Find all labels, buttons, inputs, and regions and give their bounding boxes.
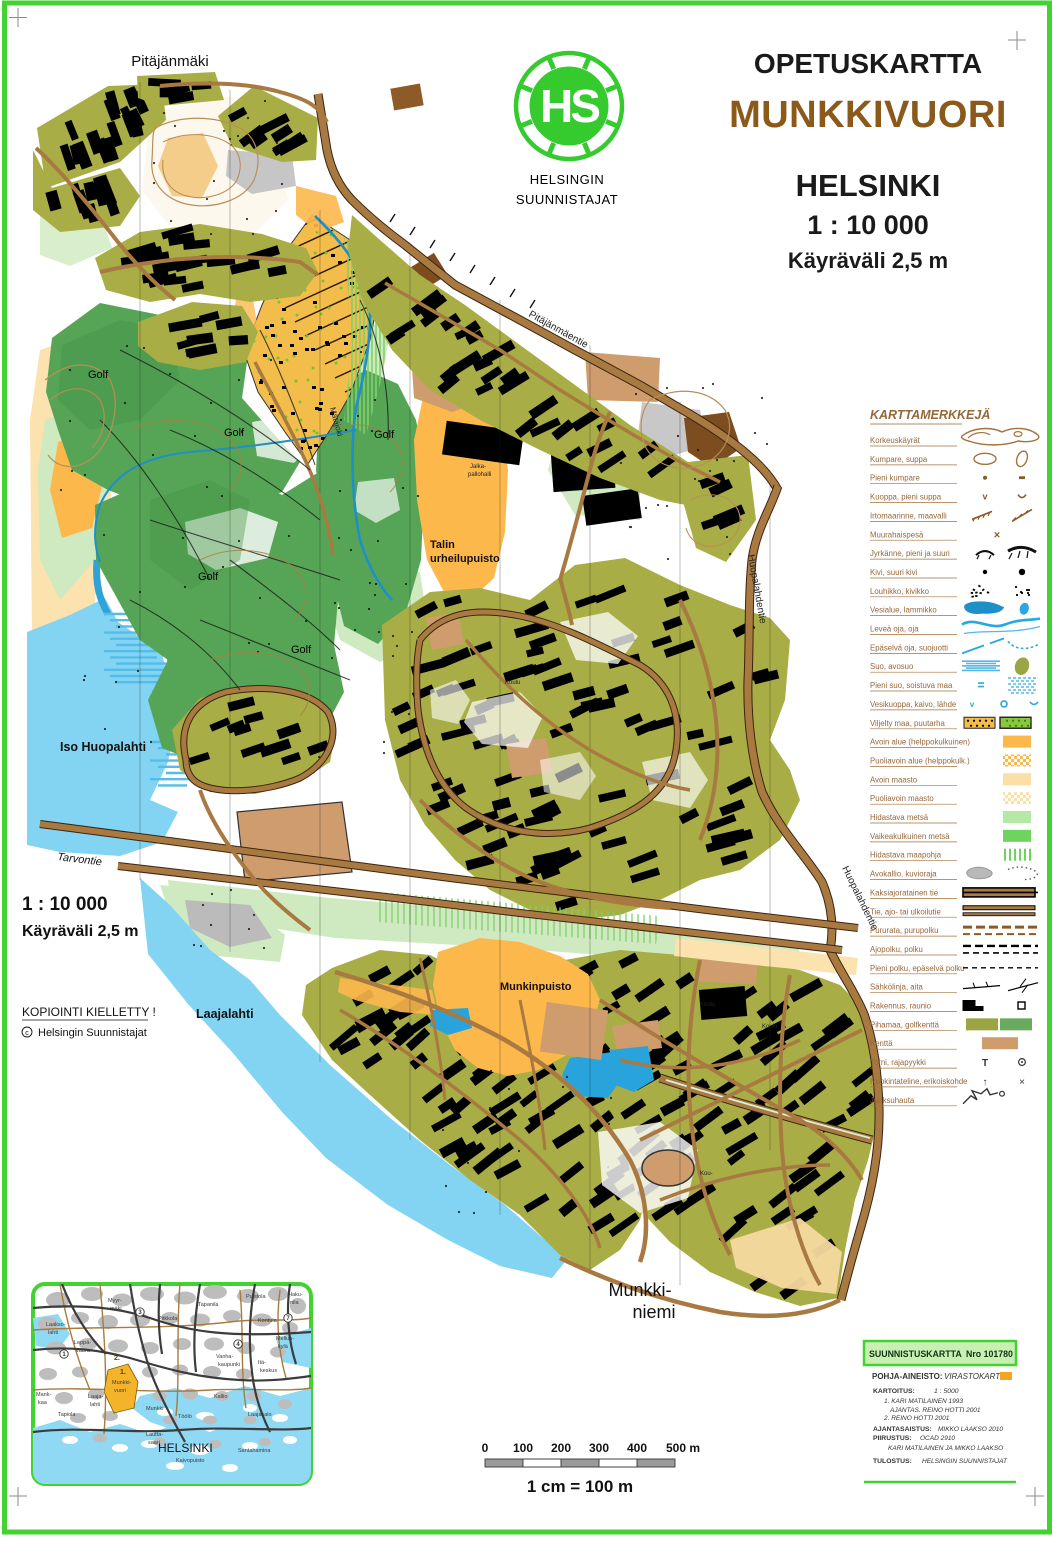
svg-text:1. KARI MATILAINEN 1993: 1. KARI MATILAINEN 1993 — [884, 1398, 963, 1405]
svg-text:Kou-: Kou- — [700, 1171, 713, 1177]
svg-text:keskus: keskus — [260, 1368, 277, 1374]
svg-text:Irtomaarinne, maavalli: Irtomaarinne, maavalli — [870, 511, 947, 520]
svg-text:SUUNNISTAJAT: SUUNNISTAJAT — [516, 192, 618, 207]
svg-text:Laajalahti: Laajalahti — [196, 1007, 254, 1021]
svg-text:HELSINKI: HELSINKI — [158, 1441, 213, 1455]
svg-text:Golf: Golf — [198, 571, 219, 583]
svg-text:Lautta-: Lautta- — [146, 1432, 163, 1438]
svg-text:Golf: Golf — [88, 369, 109, 381]
svg-text:Vesikuoppa, kaivo, lähde: Vesikuoppa, kaivo, lähde — [870, 700, 956, 709]
svg-text:Avoin maasto: Avoin maasto — [870, 775, 918, 784]
svg-text:HELSINGIN SUUNNISTAJAT: HELSINGIN SUUNNISTAJAT — [922, 1458, 1008, 1465]
svg-text:Kallio: Kallio — [214, 1394, 227, 1400]
svg-text:Laaja-: Laaja- — [88, 1394, 103, 1400]
svg-text:v: v — [982, 492, 987, 502]
svg-text:Jalka-: Jalka- — [470, 464, 486, 470]
svg-text:Epäselvä oja, suojuotti: Epäselvä oja, suojuotti — [870, 643, 948, 652]
svg-text:Pihamaa, golfkenttä: Pihamaa, golfkenttä — [870, 1020, 940, 1029]
svg-text:1.: 1. — [120, 1369, 126, 1376]
svg-text:Juoksuhauta: Juoksuhauta — [870, 1096, 915, 1105]
svg-text:Golf: Golf — [291, 644, 312, 656]
svg-text:Käyräväli 2,5 m: Käyräväli 2,5 m — [788, 248, 948, 273]
svg-text:Iso Huopalahti: Iso Huopalahti — [60, 740, 146, 754]
svg-text:×: × — [994, 529, 1000, 541]
svg-text:v: v — [970, 700, 975, 709]
svg-text:Kumpare, suppa: Kumpare, suppa — [870, 455, 928, 464]
svg-text:vaara: vaara — [76, 1348, 91, 1354]
svg-text:300: 300 — [589, 1441, 609, 1455]
svg-text:HELSINKI: HELSINKI — [796, 168, 941, 203]
svg-text:KARI MATILAINEN JA MIKKO LAAK: KARI MATILAINEN JA MIKKO LAAKSO — [888, 1445, 1003, 1452]
svg-text:Golf: Golf — [224, 427, 245, 439]
svg-text:PIIRUSTUS:: PIIRUSTUS: — [873, 1435, 912, 1442]
svg-text:Kaksiajoratainen tie: Kaksiajoratainen tie — [870, 888, 938, 897]
svg-text:nila: nila — [290, 1300, 300, 1306]
svg-text:Ruokintateline, erikoiskohde: Ruokintateline, erikoiskohde — [870, 1077, 968, 1086]
svg-text:Munkki-: Munkki- — [608, 1280, 671, 1300]
svg-text:POHJA-AINEISTO:: POHJA-AINEISTO: — [872, 1372, 943, 1381]
svg-text:Pieni polku, epäselvä polku: Pieni polku, epäselvä polku — [870, 964, 965, 973]
svg-text:Torni, rajapyykki: Torni, rajapyykki — [870, 1058, 926, 1067]
svg-text:lahti: lahti — [90, 1402, 100, 1408]
svg-text:Leppä-: Leppä- — [74, 1340, 91, 1346]
svg-text:Tie, ajo- tai ulkoilutie: Tie, ajo- tai ulkoilutie — [870, 907, 941, 916]
svg-text:Tapiola: Tapiola — [58, 1412, 76, 1418]
svg-text:Puoliavoin maasto: Puoliavoin maasto — [870, 794, 934, 803]
svg-text:Kaivopuisto: Kaivopuisto — [176, 1458, 204, 1464]
svg-text:Käyräväli 2,5 m: Käyräväli 2,5 m — [22, 923, 139, 940]
svg-text:kylä: kylä — [278, 1344, 289, 1350]
svg-text:Korkeuskäyrät: Korkeuskäyrät — [870, 436, 921, 445]
svg-text:Leveä oja, oja: Leveä oja, oja — [870, 625, 919, 634]
svg-text:Koulu: Koulu — [762, 1024, 777, 1030]
svg-text:500 m: 500 m — [666, 1441, 700, 1455]
svg-text:1 : 10 000: 1 : 10 000 — [22, 894, 108, 915]
svg-text:↑: ↑ — [983, 1077, 988, 1088]
svg-text:T: T — [982, 1058, 988, 1069]
svg-text:Viljelty maa, puutarha: Viljelty maa, puutarha — [870, 719, 945, 728]
svg-text:MUNKKIVUORI: MUNKKIVUORI — [729, 94, 1007, 136]
svg-text:Pitkkola: Pitkkola — [158, 1316, 178, 1322]
svg-text:Puoliavoin alue (helppokulk.): Puoliavoin alue (helppokulk.) — [870, 756, 970, 765]
svg-text:AJANTASAISTUS:: AJANTASAISTUS: — [873, 1426, 932, 1433]
svg-text:Hidastava metsä: Hidastava metsä — [870, 813, 929, 822]
svg-text:urheilupuisto: urheilupuisto — [430, 553, 500, 565]
svg-text:×: × — [1019, 1077, 1025, 1088]
svg-text:Munkinpuisto: Munkinpuisto — [500, 981, 572, 993]
svg-text:OPETUSKARTTA: OPETUSKARTTA — [754, 48, 982, 79]
svg-text:400: 400 — [627, 1441, 647, 1455]
svg-text:0: 0 — [482, 1441, 489, 1455]
svg-text:Mellun-: Mellun- — [276, 1336, 294, 1342]
svg-text:Santahamina: Santahamina — [238, 1448, 271, 1454]
svg-text:Itä-: Itä- — [258, 1360, 266, 1366]
svg-text:niemi: niemi — [632, 1302, 675, 1322]
svg-text:Muurahaispesä: Muurahaispesä — [870, 530, 924, 539]
svg-text:lahti: lahti — [48, 1330, 58, 1336]
svg-text:c: c — [25, 1030, 29, 1037]
svg-text:Vanha-: Vanha- — [216, 1354, 233, 1360]
svg-text:SUUNNISTUSKARTTA: SUUNNISTUSKARTTA — [869, 1349, 962, 1359]
svg-text:Munkki: Munkki — [146, 1406, 163, 1412]
svg-text:Kenttä: Kenttä — [870, 1039, 893, 1048]
svg-text:Kivi, suuri kivi: Kivi, suuri kivi — [870, 568, 917, 577]
svg-text:pallohalli: pallohalli — [468, 472, 491, 478]
svg-text:Pururata, purupolku: Pururata, purupolku — [870, 926, 938, 935]
svg-text:Koulu: Koulu — [700, 1002, 715, 1008]
svg-text:1 cm = 100 m: 1 cm = 100 m — [527, 1477, 633, 1496]
svg-text:MIKKO LAAKSO 2010: MIKKO LAAKSO 2010 — [938, 1426, 1003, 1433]
svg-text:AJANTAS. REINO HOTTI 2001: AJANTAS. REINO HOTTI 2001 — [889, 1407, 981, 1414]
svg-text:Vaikeakulkuinen metsä: Vaikeakulkuinen metsä — [870, 832, 950, 841]
svg-text:Rakennus, raunio: Rakennus, raunio — [870, 1002, 932, 1011]
svg-text:HELSINGIN: HELSINGIN — [530, 172, 605, 187]
svg-text:HS: HS — [540, 80, 599, 132]
svg-text:Jyrkänne, pieni ja suuri: Jyrkänne, pieni ja suuri — [870, 549, 950, 558]
svg-text:TULOSTUS:: TULOSTUS: — [873, 1458, 912, 1465]
svg-text:Avoin alue (helppokulkuinen): Avoin alue (helppokulkuinen) — [870, 738, 970, 747]
svg-text:Golf: Golf — [374, 429, 395, 441]
svg-text:200: 200 — [551, 1441, 571, 1455]
svg-text:Talin: Talin — [430, 539, 455, 551]
svg-text:Mank-: Mank- — [36, 1392, 51, 1398]
svg-text:Kontula: Kontula — [258, 1318, 278, 1324]
svg-text:Kuoppa, pieni suppa: Kuoppa, pieni suppa — [870, 493, 942, 502]
svg-text:Helsingin Suunnistajat: Helsingin Suunnistajat — [38, 1027, 147, 1039]
svg-text:Sähkölinja, aita: Sähkölinja, aita — [870, 983, 924, 992]
svg-text:vuori: vuori — [114, 1388, 126, 1394]
svg-text:KARTOITUS:: KARTOITUS: — [873, 1388, 915, 1395]
svg-text:1 : 10 000: 1 : 10 000 — [807, 210, 929, 240]
svg-text:VIRASTOKARTTA: VIRASTOKARTTA — [944, 1372, 1010, 1381]
svg-text:100: 100 — [513, 1441, 533, 1455]
svg-text:Ajopolku, polku: Ajopolku, polku — [870, 945, 923, 954]
svg-text:KARTTAMERKKEJÄ: KARTTAMERKKEJÄ — [870, 407, 990, 422]
svg-text:Avokallio, kuvioraja: Avokallio, kuvioraja — [870, 870, 937, 879]
svg-text:2. REINO HOTTI 2001: 2. REINO HOTTI 2001 — [883, 1415, 950, 1422]
svg-text:Laajasalo: Laajasalo — [248, 1412, 272, 1418]
svg-text:Nro 101780: Nro 101780 — [966, 1349, 1013, 1359]
svg-text:Koulu: Koulu — [505, 680, 520, 686]
svg-text:kaa: kaa — [38, 1400, 48, 1406]
svg-text:Pieni suo, soistuva maa: Pieni suo, soistuva maa — [870, 681, 953, 690]
svg-text:1 : 5000: 1 : 5000 — [934, 1388, 959, 1395]
svg-text:Laakso-: Laakso- — [46, 1322, 66, 1328]
svg-text:Suo, avosuo: Suo, avosuo — [870, 662, 914, 671]
svg-text:Hidastava maapohja: Hidastava maapohja — [870, 851, 942, 860]
svg-text:Töölö: Töölö — [178, 1414, 192, 1420]
svg-text:2.: 2. — [114, 1355, 120, 1362]
svg-text:KOPIOINTI KIELLETTY !: KOPIOINTI KIELLETTY ! — [22, 1005, 156, 1019]
svg-text:Louhikko, kivikko: Louhikko, kivikko — [870, 587, 930, 596]
svg-text:Pieni kumpare: Pieni kumpare — [870, 474, 920, 483]
svg-text:kaupunki: kaupunki — [218, 1362, 240, 1368]
svg-text:mäki: mäki — [110, 1306, 122, 1312]
svg-text:Haku-: Haku- — [288, 1292, 303, 1298]
svg-text:Tapanila: Tapanila — [198, 1302, 219, 1308]
svg-text:Puistola: Puistola — [246, 1294, 267, 1300]
svg-text:Myyr-: Myyr- — [108, 1298, 122, 1304]
svg-text:Pitäjänmäki: Pitäjänmäki — [131, 53, 209, 70]
svg-text:Vesialue, lammikko: Vesialue, lammikko — [870, 606, 937, 615]
svg-text:OCAD 2910: OCAD 2910 — [920, 1435, 955, 1442]
svg-text:Munkki-: Munkki- — [112, 1380, 131, 1386]
